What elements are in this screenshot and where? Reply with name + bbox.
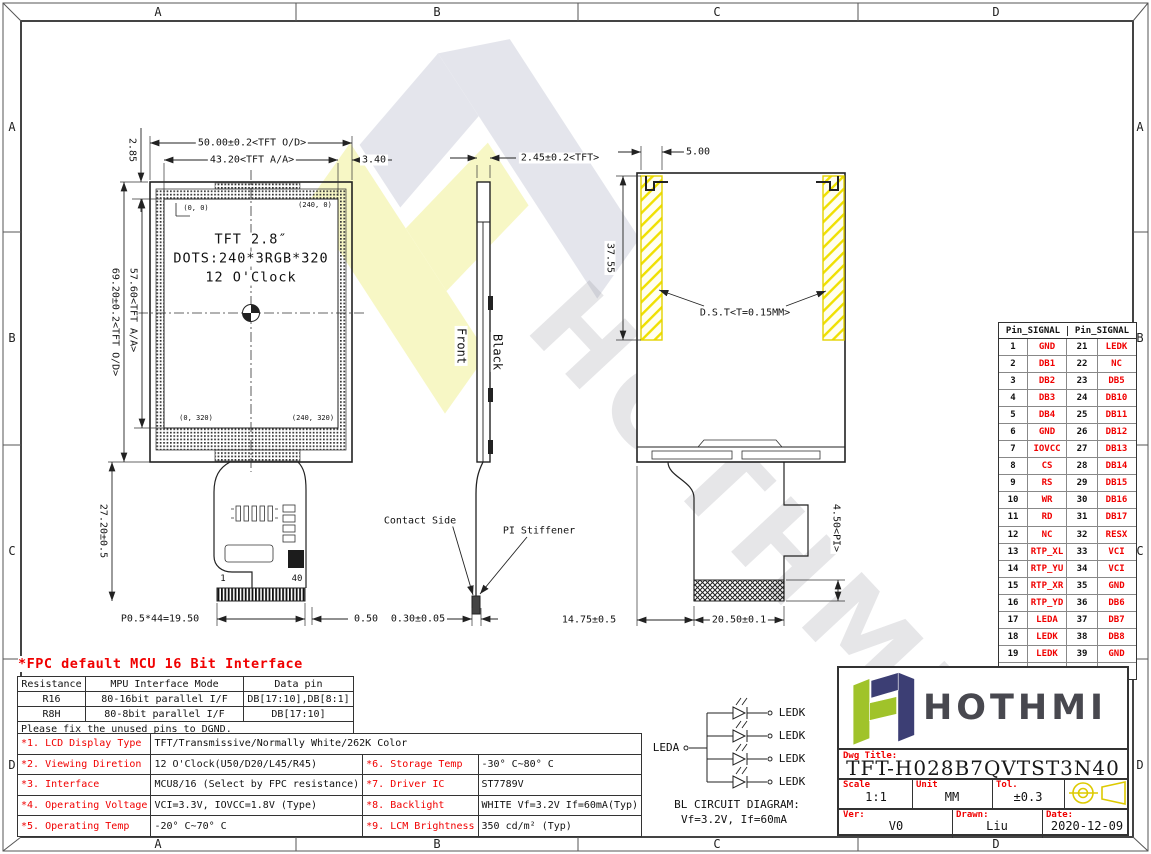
spec-value: TFT/Transmissive/Normally White/262K Col… — [151, 734, 642, 755]
pin-table-row: 8CS28DB14 — [999, 458, 1136, 475]
pin-signal: RS — [1028, 475, 1067, 491]
pin-table-header-right: Pin_SIGNAL — [1068, 326, 1136, 336]
spec-value: -30° C~80° C — [478, 754, 642, 775]
pin-number: 2 — [999, 356, 1028, 372]
corner-bottom-left: (0, 320) — [177, 415, 215, 423]
pin-table-header: Pin_SIGNAL Pin_SIGNAL — [999, 323, 1136, 339]
pin-table-row: 1GND21LEDK — [999, 339, 1136, 356]
pin-signal: LEDK — [1098, 339, 1135, 355]
pin-number: 28 — [1067, 458, 1098, 474]
pin-signal: DB12 — [1098, 424, 1135, 440]
spec-key: *2. Viewing Diretion — [18, 754, 151, 775]
table-row: *2. Viewing Diretion 12 O'Clock(U50/D20/… — [18, 754, 642, 775]
tol-label: Tol. — [996, 780, 1018, 790]
bl-caption-values: Vf=3.2V, If=60mA — [681, 814, 787, 826]
pin-number: 39 — [1067, 646, 1098, 662]
display-size-label: TFT 2.8″ — [212, 233, 289, 248]
cell: 80-8bit parallel I/F — [86, 707, 244, 722]
pin-signal: GND — [1098, 646, 1135, 662]
pin-number: 37 — [1067, 612, 1098, 628]
pin-table-row: 15RTP_XR35GND — [999, 578, 1136, 595]
pin-first-label: 1 — [220, 575, 225, 585]
table-row: R16 80-16bit parallel I/F DB[17:10],DB[8… — [18, 692, 354, 707]
grid-row-a-right: A — [1136, 120, 1143, 134]
pin-number: 10 — [999, 492, 1028, 508]
pin-signal: CS — [1028, 458, 1067, 474]
unit-label: Unit — [916, 780, 938, 790]
dim-height-aa: 57.60<TFT A/A> — [128, 266, 139, 354]
pin-number: 31 — [1067, 509, 1098, 525]
fpc-interface-table: Resistance MPU Interface Mode Data pin R… — [17, 676, 354, 737]
dwg-title: TFT-H028B7QVTST3N40 — [846, 756, 1120, 780]
table-row: *1. LCD Display Type TFT/Transmissive/No… — [18, 734, 642, 755]
ver-label: Ver: — [843, 810, 865, 820]
pin-signal: DB3 — [1028, 390, 1067, 406]
pin-number: 33 — [1067, 544, 1098, 560]
spec-key: *1. LCD Display Type — [18, 734, 151, 755]
side-black-label: Black — [490, 332, 503, 372]
pin-table-row: 2DB122NC — [999, 356, 1136, 373]
pin-number: 30 — [1067, 492, 1098, 508]
pin-number: 24 — [1067, 390, 1098, 406]
pin-signal: RTP_XR — [1028, 578, 1067, 594]
pin-number: 14 — [999, 561, 1028, 577]
bl-cathode-label: LEDK — [779, 753, 806, 765]
dim-width-od: 50.00±0.2<TFT O/D> — [196, 138, 308, 149]
pin-signal: DB7 — [1098, 612, 1135, 628]
col-header: MPU Interface Mode — [86, 677, 244, 692]
pin-signal: DB6 — [1098, 595, 1135, 611]
dim-thickness: 2.45±0.2<TFT> — [519, 153, 601, 164]
pin-table-row: 16RTP_YD36DB6 — [999, 595, 1136, 612]
pin-number: 16 — [999, 595, 1028, 611]
table-row: Resistance MPU Interface Mode Data pin — [18, 677, 354, 692]
pin-number: 35 — [1067, 578, 1098, 594]
spec-value: 12 O'Clock(U50/D20/L45/R45) — [151, 754, 363, 775]
dim-end-margin: 0.50 — [352, 614, 380, 625]
dim-pi: 4.50<PI> — [831, 502, 842, 554]
pin-signal: IOVCC — [1028, 441, 1067, 457]
projection-symbol-icon — [1065, 779, 1130, 807]
grid-col-d-bottom: D — [992, 837, 999, 851]
unit-value: MM — [945, 790, 959, 804]
pin-number: 6 — [999, 424, 1028, 440]
spec-key: *8. Backlight — [363, 795, 478, 816]
spec-key: *6. Storage Temp — [363, 754, 478, 775]
pin-number: 34 — [1067, 561, 1098, 577]
corner-bottom-right: (240, 320) — [290, 415, 336, 423]
pin-number: 11 — [999, 509, 1028, 525]
spec-table: *1. LCD Display Type TFT/Transmissive/No… — [17, 733, 642, 837]
pin-signal: DB8 — [1098, 629, 1135, 645]
pin-signal: VCI — [1098, 561, 1135, 577]
pin-signal: DB15 — [1098, 475, 1135, 491]
pin-signal: RTP_YD — [1028, 595, 1067, 611]
dim-width-aa: 43.20<TFT A/A> — [208, 155, 296, 166]
pin-table-row: 14RTP_YU34VCI — [999, 561, 1136, 578]
pin-table-row: 6GND26DB12 — [999, 424, 1136, 441]
pin-number: 21 — [1067, 339, 1098, 355]
tol-value: ±0.3 — [1014, 790, 1043, 804]
hothmi-logo-icon — [847, 671, 927, 747]
pin-number: 18 — [999, 629, 1028, 645]
grid-row-a-left: A — [8, 120, 15, 134]
pin-number: 5 — [999, 407, 1028, 423]
pin-signal: RD — [1028, 509, 1067, 525]
pin-number: 23 — [1067, 373, 1098, 389]
pin-table-row: 5DB425DB11 — [999, 407, 1136, 424]
dim-tape-width: 5.00 — [684, 147, 712, 158]
spec-value: 350 cd/m² (Typ) — [478, 816, 642, 837]
grid-col-a-top: A — [154, 5, 161, 19]
pin-signal: LEDK — [1028, 646, 1067, 662]
fpc-interface-title: *FPC default MCU 16 Bit Interface — [18, 656, 303, 672]
dim-height-od: 69.20±0.2<TFT O/D> — [110, 266, 121, 378]
pin-table-header-left: Pin_SIGNAL — [999, 326, 1068, 336]
grid-col-b-top: B — [433, 5, 440, 19]
table-row: R8H 80-8bit parallel I/F DB[17:10] — [18, 707, 354, 722]
brand-wordmark: HOTHMI — [923, 688, 1107, 728]
pin-table-row: 4DB324DB10 — [999, 390, 1136, 407]
pin-signal: RTP_XL — [1028, 544, 1067, 560]
dim-pin-pitch: P0.5*44=19.50 — [119, 614, 201, 625]
grid-row-d-right: D — [1136, 758, 1143, 772]
spec-key: *4. Operating Voltage — [18, 795, 151, 816]
pin-signal: RTP_YU — [1028, 561, 1067, 577]
cell: DB[17:10] — [244, 707, 354, 722]
grid-row-c-left: C — [8, 544, 15, 558]
table-row: *5. Operating Temp -20° C~70° C *9. LCM … — [18, 816, 642, 837]
pin-number: 22 — [1067, 356, 1098, 372]
grid-col-d-top: D — [992, 5, 999, 19]
pin-signal: DB4 — [1028, 407, 1067, 423]
table-row: *3. Interface MCU8/16 (Select by FPC res… — [18, 775, 642, 796]
pin-signal: VCI — [1098, 544, 1135, 560]
cell: 80-16bit parallel I/F — [86, 692, 244, 707]
cell: R8H — [18, 707, 86, 722]
dim-fpc-drop: 27.20±0.5 — [98, 502, 109, 560]
pin-table-row: 9RS29DB15 — [999, 475, 1136, 492]
pin-table-row: 12NC32RESX — [999, 527, 1136, 544]
pin-signal: GND — [1098, 578, 1135, 594]
cell: R16 — [18, 692, 86, 707]
pin-number: 4 — [999, 390, 1028, 406]
col-header: Data pin — [244, 677, 354, 692]
col-header: Resistance — [18, 677, 86, 692]
bl-cathode-label: LEDK — [779, 776, 806, 788]
scale-value: 1:1 — [865, 790, 887, 804]
pin-signal: DB5 — [1098, 373, 1135, 389]
pin-number: 36 — [1067, 595, 1098, 611]
pin-number: 17 — [999, 612, 1028, 628]
contact-side-label: Contact Side — [382, 516, 458, 527]
spec-key: *3. Interface — [18, 775, 151, 796]
pin-number: 13 — [999, 544, 1028, 560]
pin-table-row: 19LEDK39GND — [999, 646, 1136, 663]
bl-cathode-label: LEDK — [779, 730, 806, 742]
pin-signal: DB11 — [1098, 407, 1135, 423]
pin-number: 29 — [1067, 475, 1098, 491]
cell: DB[17:10],DB[8:1] — [244, 692, 354, 707]
pin-number: 1 — [999, 339, 1028, 355]
pin-number: 38 — [1067, 629, 1098, 645]
grid-row-b-right: B — [1136, 331, 1143, 345]
side-front-label: Front — [454, 326, 467, 366]
pin-table-row: 17LEDA37DB7 — [999, 612, 1136, 629]
tape-callout: D.S.T<T=0.15MM> — [698, 308, 792, 319]
pin-number: 12 — [999, 527, 1028, 543]
grid-row-b-left: B — [8, 331, 15, 345]
dim-tail: 14.75±0.5 — [560, 615, 618, 626]
corner-origin: (0, 0) — [181, 205, 210, 213]
grid-row-d-left: D — [8, 758, 15, 772]
dim-tape-height: 37.55 — [605, 241, 616, 275]
display-clock-label: 12 O'Clock — [203, 271, 298, 286]
grid-col-a-bottom: A — [154, 837, 161, 851]
display-dots-label: DOTS:240*3RGB*320 — [171, 252, 330, 267]
pin-signal: DB17 — [1098, 509, 1135, 525]
pin-number: 3 — [999, 373, 1028, 389]
scale-label: Scale — [843, 780, 870, 790]
corner-top-right: (240, 0) — [296, 202, 334, 210]
grid-col-c-top: C — [713, 5, 720, 19]
drawn-label: Drawn: — [956, 810, 989, 820]
pin-number: 8 — [999, 458, 1028, 474]
spec-value: MCU8/16 (Select by FPC resistance) — [151, 775, 363, 796]
pin-signal: DB13 — [1098, 441, 1135, 457]
date-value: 2020-12-09 — [1051, 819, 1123, 833]
dim-connector: 20.50±0.1 — [710, 615, 768, 626]
spec-value: VCI=3.3V, IOVCC=1.8V (Type) — [151, 795, 363, 816]
pin-signal: LEDA — [1028, 612, 1067, 628]
spec-value: ST7789V — [478, 775, 642, 796]
drawn-value: Liu — [986, 819, 1008, 833]
pin-signal: GND — [1028, 424, 1067, 440]
ver-value: V0 — [889, 819, 903, 833]
pin-signal: LEDK — [1028, 629, 1067, 645]
pin-number: 32 — [1067, 527, 1098, 543]
spec-key: *5. Operating Temp — [18, 816, 151, 837]
grid-row-c-right: C — [1136, 544, 1143, 558]
pin-signal: DB14 — [1098, 458, 1135, 474]
bl-caption: BL CIRCUIT DIAGRAM: — [674, 799, 800, 811]
pin-table-row: 11RD31DB17 — [999, 509, 1136, 526]
pin-signal: RESX — [1098, 527, 1135, 543]
bl-anode-label: LEDA — [651, 742, 682, 754]
pin-signal: NC — [1028, 527, 1067, 543]
pin-number: 9 — [999, 475, 1028, 491]
pin-table: Pin_SIGNAL Pin_SIGNAL 1GND21LEDK2DB122NC… — [998, 322, 1137, 680]
pin-number: 25 — [1067, 407, 1098, 423]
dim-stiffener: 0.30±0.05 — [389, 614, 447, 625]
dim-margin-top: 2.85 — [127, 136, 138, 164]
pin-signal: DB2 — [1028, 373, 1067, 389]
pi-stiffener-label: PI Stiffener — [501, 526, 577, 537]
pin-table-row: 18LEDK38DB8 — [999, 629, 1136, 646]
pin-table-row: 10WR30DB16 — [999, 492, 1136, 509]
spec-value: -20° C~70° C — [151, 816, 363, 837]
pin-last-label: 40 — [292, 575, 303, 585]
pin-number: 26 — [1067, 424, 1098, 440]
pin-signal: DB1 — [1028, 356, 1067, 372]
pin-table-row: 3DB223DB5 — [999, 373, 1136, 390]
pin-number: 7 — [999, 441, 1028, 457]
bl-cathode-label: LEDK — [779, 707, 806, 719]
pin-number: 19 — [999, 646, 1028, 662]
pin-signal: GND — [1028, 339, 1067, 355]
table-row: *4. Operating Voltage VCI=3.3V, IOVCC=1.… — [18, 795, 642, 816]
dim-margin-right: 3.40 — [360, 155, 388, 166]
pin-table-row: 7IOVCC27DB13 — [999, 441, 1136, 458]
pin-number: 27 — [1067, 441, 1098, 457]
pin-signal: NC — [1098, 356, 1135, 372]
grid-col-c-bottom: C — [713, 837, 720, 851]
title-block: HOTHMI Dwg Title: TFT-H028B7QVTST3N40 Sc… — [837, 666, 1129, 836]
pin-signal: WR — [1028, 492, 1067, 508]
engineering-drawing-sheet: HOTHMI — [0, 0, 1151, 854]
spec-key: *7. Driver IC — [363, 775, 478, 796]
pin-signal: DB10 — [1098, 390, 1135, 406]
spec-value: WHITE Vf=3.2V If=60mA(Typ) — [478, 795, 642, 816]
pin-signal: DB16 — [1098, 492, 1135, 508]
spec-key: *9. LCM Brightness — [363, 816, 478, 837]
grid-col-b-bottom: B — [433, 837, 440, 851]
pin-table-row: 13RTP_XL33VCI — [999, 544, 1136, 561]
pin-number: 15 — [999, 578, 1028, 594]
